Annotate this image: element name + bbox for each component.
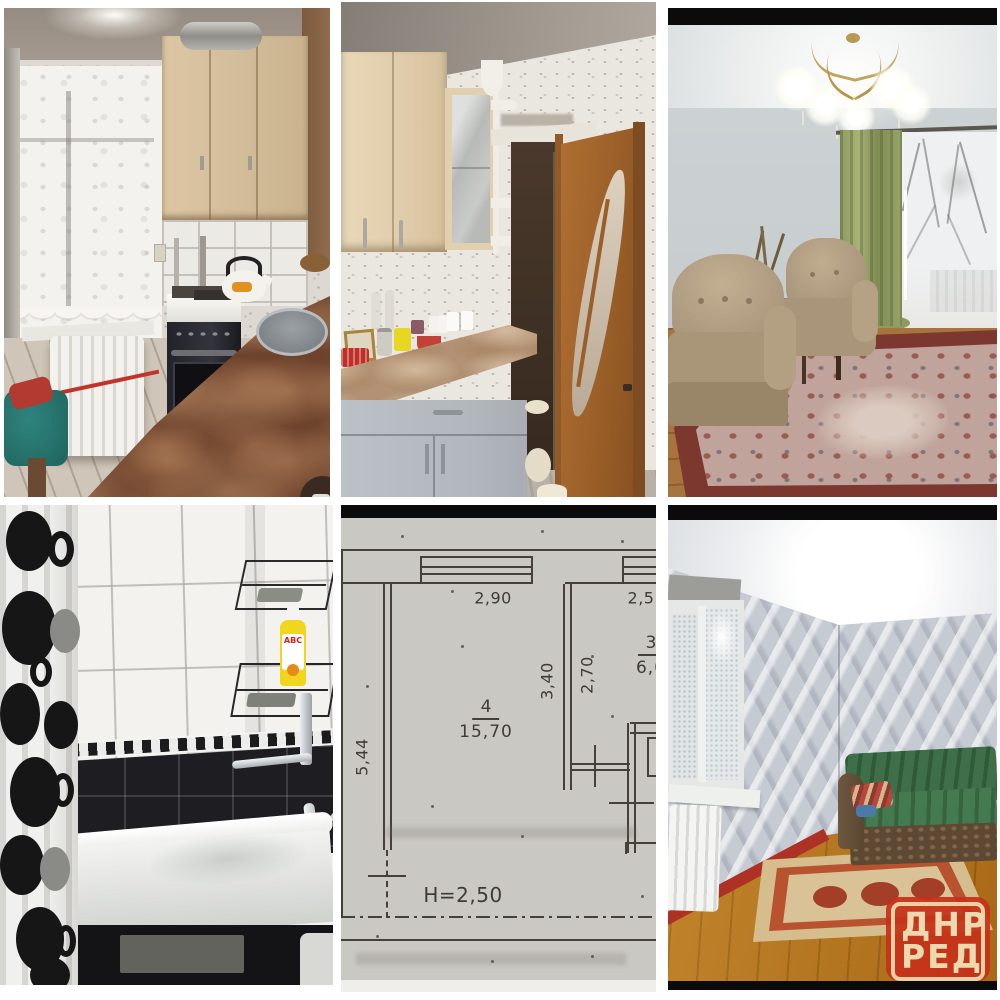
cabinet-handle xyxy=(200,156,204,170)
letterbox-bar xyxy=(668,505,997,520)
sofa xyxy=(838,745,997,869)
agency-watermark: ДНР РЕД xyxy=(886,897,990,981)
purple-cup xyxy=(411,320,424,334)
tuft-button xyxy=(698,298,704,304)
yellow-cup xyxy=(394,328,411,351)
shelf-bracket xyxy=(481,60,503,96)
tuft-button xyxy=(722,296,728,302)
plan-dim-top-right: 2,5 xyxy=(628,589,655,608)
soap-dish xyxy=(246,693,296,707)
white-mug xyxy=(447,312,459,331)
living-room-photo[interactable] xyxy=(668,8,997,497)
bathroom-photo[interactable]: ABC xyxy=(0,505,333,985)
armchair-armrest xyxy=(764,306,796,390)
scan-dot xyxy=(451,590,454,593)
curtain-circle xyxy=(0,835,44,895)
curtain-circle xyxy=(0,683,40,745)
upper-cabinet-doors xyxy=(341,52,447,252)
corner-shelf xyxy=(300,254,330,272)
corner-shelf xyxy=(491,100,517,110)
scan-bottom-fade xyxy=(341,980,656,992)
scan-dot xyxy=(541,530,544,533)
chandelier-canopy xyxy=(846,33,860,43)
plan-room4-label: 4 15,70 xyxy=(459,697,513,742)
scan-dot xyxy=(591,955,594,958)
armchair-armrest xyxy=(852,280,878,342)
scan-dot xyxy=(521,835,524,838)
curtain-ring xyxy=(56,925,76,957)
tree-branch xyxy=(906,205,936,259)
bleed-text-shadow xyxy=(356,953,626,965)
curtain-circle xyxy=(2,591,56,665)
window-mullion xyxy=(904,190,907,300)
drawer-handle xyxy=(433,410,463,415)
plan-fixture-line xyxy=(625,842,656,844)
watermark-line2: РЕД xyxy=(901,941,975,973)
plan-dashdot-line xyxy=(341,916,656,918)
wall-corner-shade xyxy=(245,505,265,765)
oven-handle xyxy=(171,350,237,356)
plan-window-line xyxy=(422,566,531,568)
plan-dim-top: 2,90 xyxy=(474,589,512,608)
kitchen-photo-window[interactable] xyxy=(4,8,330,497)
scan-dot xyxy=(621,540,624,543)
sink xyxy=(256,308,328,356)
letterbox-bar xyxy=(668,981,997,990)
cabinet-handle xyxy=(363,218,367,248)
plan-bottom-line xyxy=(341,939,656,941)
curtain-circle-grey xyxy=(50,609,80,653)
plan-ceiling-height: H=2,50 xyxy=(423,883,502,907)
room3-area: 6,0 xyxy=(636,658,656,678)
plan-room3-label: 3 6,0 xyxy=(636,633,656,678)
stove-controls xyxy=(173,330,235,338)
letterbox-bar xyxy=(668,8,997,25)
rug-medallion xyxy=(816,382,951,463)
kettle xyxy=(222,270,266,302)
stool-leg xyxy=(28,458,46,497)
door-handle xyxy=(623,384,632,391)
cabinet-handle xyxy=(399,220,403,250)
armchair-front xyxy=(668,254,800,426)
door-glass-insert xyxy=(564,167,633,419)
plan-window xyxy=(420,556,533,584)
plan-window-line xyxy=(624,566,656,568)
scan-top-bar xyxy=(341,505,656,518)
glass-bottle xyxy=(385,290,394,330)
scan-dot xyxy=(641,895,644,898)
frosted-glass xyxy=(452,95,490,243)
window-frame xyxy=(668,600,744,792)
blue-item xyxy=(856,805,876,817)
scan-dot xyxy=(431,805,434,808)
plan-wall xyxy=(570,584,572,790)
under-tub-dark xyxy=(56,925,333,985)
watermark-glyph xyxy=(312,494,330,497)
curtain-circle-grey xyxy=(40,847,70,891)
kitchen-photo-door[interactable] xyxy=(341,2,656,497)
glass-bottle xyxy=(371,292,381,330)
wire-rail xyxy=(237,689,328,691)
room4-number: 4 xyxy=(473,697,500,720)
tree-branch xyxy=(947,214,971,265)
plan-wall-dashed xyxy=(386,850,388,918)
curtain-circle xyxy=(44,701,78,749)
floor-plan-scan[interactable]: 2,90 2,5 5,44 3,40 2,70 4 15,70 3 6,0 H=… xyxy=(341,505,656,992)
plan-door-tick xyxy=(594,745,596,787)
plan-fixture-line xyxy=(630,722,656,724)
window-pane-mesh xyxy=(672,614,698,778)
tree-foliage xyxy=(938,162,978,202)
curtain-ring xyxy=(30,657,52,687)
scan-dot xyxy=(461,645,464,648)
radiator xyxy=(930,270,997,312)
room4-area: 15,70 xyxy=(459,722,513,742)
plan-window-line xyxy=(422,573,531,575)
plan-fixture-line xyxy=(630,732,656,734)
shelf-support xyxy=(493,94,499,254)
cabinet-handle xyxy=(425,444,429,474)
armchair-skirt xyxy=(668,382,788,426)
white-cup xyxy=(429,316,438,333)
cabinet-seam xyxy=(256,36,258,220)
wire-corner-shelf xyxy=(235,560,333,610)
stool-edge xyxy=(525,448,551,482)
bucket xyxy=(300,933,333,985)
bottle-label-text: ABC xyxy=(284,636,302,645)
window-light xyxy=(708,612,736,662)
stool-edge xyxy=(537,484,567,497)
tuft-button xyxy=(746,298,752,304)
bleed-text-shadow xyxy=(386,827,636,838)
sofa-front-brown xyxy=(849,822,997,865)
plan-fixture-rect xyxy=(647,737,656,777)
glass-cabinet xyxy=(445,88,497,250)
chandelier xyxy=(778,33,928,138)
door-seam xyxy=(433,436,435,497)
plan-dim-inner-left: 3,40 xyxy=(538,662,557,700)
stool-edge xyxy=(525,400,549,414)
kettle-label xyxy=(232,282,252,292)
scan-dot xyxy=(401,535,404,538)
plan-tick xyxy=(368,875,406,877)
soap-dish xyxy=(256,588,303,602)
cabinet-handle xyxy=(248,156,252,170)
door xyxy=(561,128,633,497)
curtain-circle xyxy=(30,957,70,985)
plan-wall xyxy=(390,584,392,850)
plan-dim-left: 5,44 xyxy=(353,738,372,776)
lower-cabinet xyxy=(341,400,527,497)
tuft-button xyxy=(834,270,839,275)
room-sofa-photo[interactable]: ДНР РЕД xyxy=(668,505,997,990)
bottle-label-dot xyxy=(287,664,299,676)
outlet xyxy=(154,244,166,262)
plan-wall xyxy=(383,584,385,850)
upper-cabinets xyxy=(162,36,308,220)
chandelier-crystal xyxy=(802,111,804,125)
window-post xyxy=(698,606,706,782)
scan-dot xyxy=(366,685,369,688)
cabinet-handle xyxy=(441,444,445,474)
plan-wall xyxy=(570,763,630,765)
wire-rail xyxy=(242,584,326,586)
window-lace-curtain xyxy=(4,66,162,358)
plan-fixture-line xyxy=(625,842,627,854)
plan-wall xyxy=(563,584,565,790)
plan-wall xyxy=(570,769,630,771)
plan-outer-wall-left xyxy=(341,549,343,918)
curtain-ring xyxy=(52,773,74,807)
cabinet-seam xyxy=(392,52,394,252)
cleaner-bottle: ABC xyxy=(280,620,306,686)
curtain-fold-left xyxy=(4,48,20,378)
white-mug xyxy=(461,311,473,330)
glass-shelf-line xyxy=(452,167,490,169)
scan-dot xyxy=(491,960,494,963)
scan-dot xyxy=(591,655,594,658)
cabinet-seam xyxy=(209,36,211,220)
curtain-ring xyxy=(48,531,74,567)
scan-dot xyxy=(376,935,379,938)
scan-dot xyxy=(611,715,614,718)
radiator xyxy=(668,804,722,912)
photo-collage: ABC xyxy=(0,0,1000,1000)
plan-outer-wall-top xyxy=(341,549,656,551)
under-tub-panel xyxy=(120,935,244,973)
plan-window xyxy=(622,556,656,584)
chandelier-bulb xyxy=(890,83,932,125)
plan-dim-inner-right: 2,70 xyxy=(578,656,597,694)
glass-jar xyxy=(377,328,392,356)
room3-number: 3 xyxy=(638,633,656,656)
shower-curtain xyxy=(0,505,78,985)
curtain-circle xyxy=(6,511,52,571)
watermark-frame: ДНР РЕД xyxy=(891,902,985,981)
plan-window-line xyxy=(624,573,656,575)
plan-door-tick xyxy=(609,802,654,804)
tuft-button xyxy=(810,272,815,277)
door-frame-right xyxy=(633,122,645,497)
vent-pipe xyxy=(180,22,262,50)
